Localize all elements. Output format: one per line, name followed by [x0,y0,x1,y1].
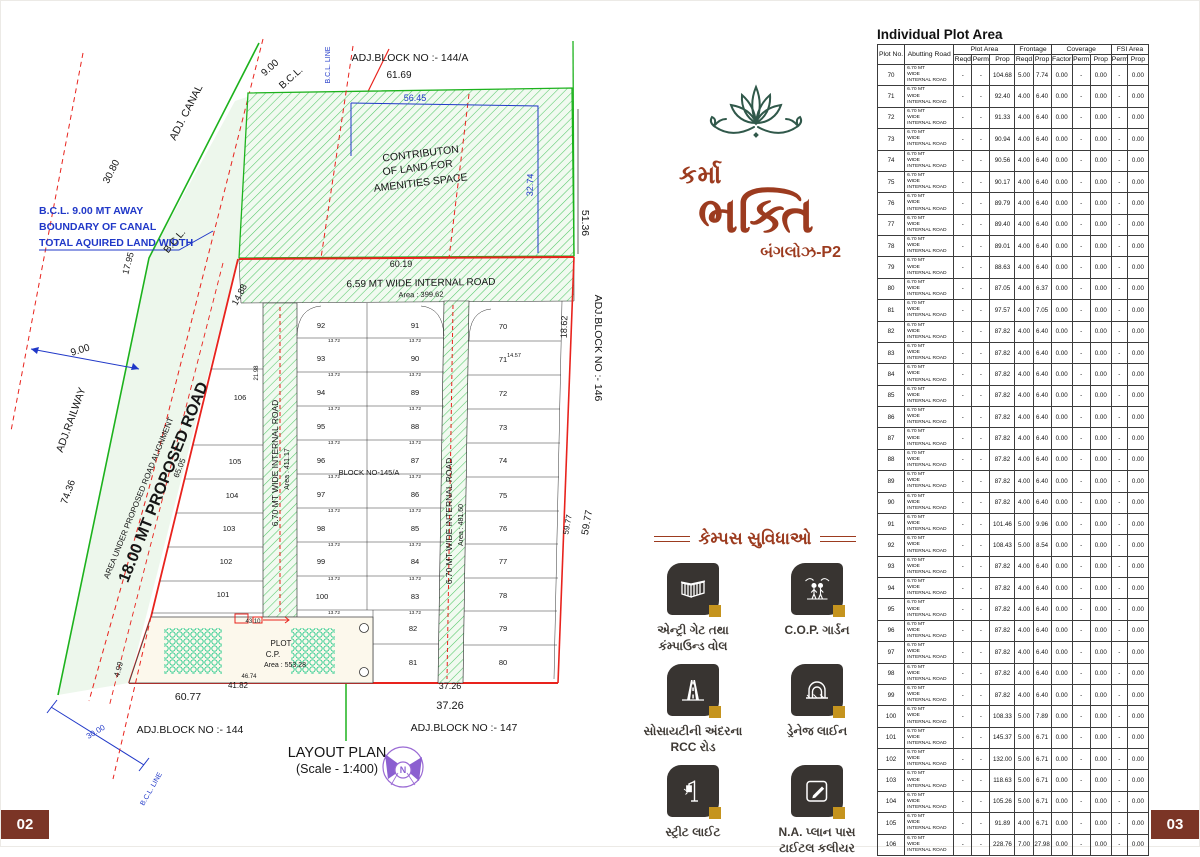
plan-dim-label: 13.72 [409,372,421,378]
plan-label: Area : 411.17 [284,448,291,490]
table-row: 716.70 MTWIDEINTERNAL ROAD--92.404.006.4… [878,86,1149,107]
table-cell: 76 [878,193,905,214]
table-cell: 0.00 [1051,791,1072,812]
table-cell: - [972,364,990,385]
plan-label: 6.70 MT WIDE INTERNAL ROAD [444,458,454,585]
table-cell: 0.00 [1051,684,1072,705]
amenity-item: સ્ટ્રીટ લાઈટ [637,765,749,856]
rcc-road-icon [667,664,719,716]
table-cell: - [972,171,990,192]
table-cell: 0.00 [1127,300,1148,321]
table-cell: 108.33 [990,706,1015,727]
table-cell: - [972,129,990,150]
amenity-label: સોસાયટીની અંદરના RCC રોડ [637,724,749,755]
table-cell: - [954,513,972,534]
table-title: Individual Plot Area [877,27,1149,42]
table-cell: - [1111,492,1127,513]
table-row: 966.70 MTWIDEINTERNAL ROAD--87.824.006.4… [878,620,1149,641]
plan-dim-label: 13.72 [328,338,340,344]
table-cell: - [954,407,972,428]
plan-dim-label: 13.72 [328,440,340,446]
plan-label: 9.00 [259,57,281,78]
table-cell: - [972,428,990,449]
table-cell: 0.00 [1051,492,1072,513]
table-cell: 0.00 [1051,834,1072,855]
plan-label: 9.00 [69,342,91,358]
plot-number: 70 [499,322,507,331]
plot-number: 74 [499,456,507,465]
table-cell: - [1072,86,1090,107]
table-cell: - [1111,663,1127,684]
table-row: 956.70 MTWIDEINTERNAL ROAD--87.824.006.4… [878,599,1149,620]
amenity-label: ડ્રેનેજ લાઈન [761,724,873,740]
table-cell: - [954,770,972,791]
table-cell: - [1072,321,1090,342]
table-cell: 4.00 [1015,492,1033,513]
table-cell: 0.00 [1090,300,1111,321]
table-cell: 4.00 [1015,193,1033,214]
page-number-right: 03 [1151,810,1199,839]
abutting-road-cell: 6.70 MTWIDEINTERNAL ROAD [905,620,954,641]
amenities-section: કેમ્પસ સુવિધાઓ એન્ટ્રી ગેટ તથા કંમ્પાઉન્… [633,529,877,857]
table-cell: 0.00 [1090,107,1111,128]
table-cell: - [1111,834,1127,855]
plot-number: 95 [317,422,325,431]
table-cell: 93 [878,556,905,577]
table-cell: - [972,65,990,86]
table-cell: 132.00 [990,749,1015,770]
table-cell: 0.00 [1090,257,1111,278]
table-cell: 0.00 [1127,834,1148,855]
table-row: 756.70 MTWIDEINTERNAL ROAD--90.174.006.4… [878,171,1149,192]
table-cell: - [972,813,990,834]
plan-label: 51.36 [579,210,591,236]
table-cell: 6.40 [1033,321,1051,342]
table-cell: 0.00 [1051,107,1072,128]
table-cell: 87 [878,428,905,449]
table-cell: - [1072,150,1090,171]
logo-subtitle: બંગલોઝ-P2 [641,244,871,262]
column-subheader: Reqd [1015,55,1033,65]
table-cell: - [972,749,990,770]
table-cell: 0.00 [1090,171,1111,192]
table-cell: 96 [878,620,905,641]
table-cell: 0.00 [1090,385,1111,406]
table-cell: - [1072,193,1090,214]
table-cell: 104 [878,791,905,812]
table-cell: 87.82 [990,428,1015,449]
abutting-road-cell: 6.70 MTWIDEINTERNAL ROAD [905,364,954,385]
table-row: 996.70 MTWIDEINTERNAL ROAD--87.824.006.4… [878,684,1149,705]
table-cell: 87.82 [990,364,1015,385]
plan-label: 6.70 MT WIDE INTERNAL ROAD [270,400,280,527]
table-cell: - [972,214,990,235]
cop-garden-icon [791,563,843,615]
plot-number: 83 [411,592,419,601]
table-row: 986.70 MTWIDEINTERNAL ROAD--87.824.006.4… [878,663,1149,684]
table-cell: - [954,321,972,342]
table-cell: 0.00 [1127,257,1148,278]
table-cell: 4.00 [1015,129,1033,150]
amenities-grid: એન્ટ્રી ગેટ તથા કંમ્પાઉન્ડ વોલC.O.P. ગાર… [633,563,877,857]
table-cell: - [1111,150,1127,171]
garden-patch [164,628,222,674]
table-cell: - [1072,364,1090,385]
table-cell: - [1072,236,1090,257]
table-cell: - [954,813,972,834]
table-cell: - [954,684,972,705]
table-cell: - [972,513,990,534]
table-cell: 0.00 [1051,620,1072,641]
abutting-road-cell: 6.70 MTWIDEINTERNAL ROAD [905,449,954,470]
plan-label: 60.19 [390,259,413,269]
abutting-road-cell: 6.70 MTWIDEINTERNAL ROAD [905,385,954,406]
plan-dim-label: 13.72 [409,610,421,616]
table-cell: 81 [878,300,905,321]
table-row: 936.70 MTWIDEINTERNAL ROAD--87.824.006.4… [878,556,1149,577]
table-cell: 82 [878,321,905,342]
table-cell: 83 [878,342,905,363]
table-cell: 0.00 [1051,535,1072,556]
abutting-road-cell: 6.70 MTWIDEINTERNAL ROAD [905,342,954,363]
table-cell: 0.00 [1127,727,1148,748]
table-cell: 6.71 [1033,791,1051,812]
abutting-road-cell: 6.70 MTWIDEINTERNAL ROAD [905,65,954,86]
table-cell: - [954,556,972,577]
plan-label: 18.62 [559,315,570,338]
table-cell: 4.00 [1015,578,1033,599]
table-cell: 88 [878,449,905,470]
plan-dim-label: 13.72 [409,440,421,446]
table-cell: 6.71 [1033,727,1051,748]
table-cell: 0.00 [1090,706,1111,727]
amenity-label: N.A. પ્લાન પાસ ટાઈટલ કલીયર [761,825,873,856]
table-row: 1016.70 MTWIDEINTERNAL ROAD--145.375.006… [878,727,1149,748]
plot-number: 76 [499,524,507,533]
table-cell: 4.00 [1015,407,1033,428]
table-cell: - [954,364,972,385]
table-cell: 87.82 [990,492,1015,513]
plot-number: 80 [499,658,507,667]
table-cell: 0.00 [1127,471,1148,492]
table-cell: - [1111,620,1127,641]
table-cell: 6.40 [1033,193,1051,214]
table-cell: 105 [878,813,905,834]
table-cell: 0.00 [1127,428,1148,449]
table-cell: - [1111,599,1127,620]
table-cell: - [954,535,972,556]
table-cell: 0.00 [1051,513,1072,534]
table-cell: - [1111,513,1127,534]
table-cell: 0.00 [1051,86,1072,107]
plan-label: 56.45 [404,93,427,103]
table-cell: 0.00 [1090,599,1111,620]
plan-label: ADJ.BLOCK NO :- 144 [137,724,244,736]
table-cell: 0.00 [1127,86,1148,107]
table-cell: 6.37 [1033,278,1051,299]
table-cell: - [1111,257,1127,278]
table-cell: - [954,193,972,214]
table-cell: - [972,727,990,748]
table-cell: - [1111,300,1127,321]
table-cell: 8.54 [1033,535,1051,556]
table-cell: - [972,407,990,428]
table-cell: 87.82 [990,471,1015,492]
abutting-road-cell: 6.70 MTWIDEINTERNAL ROAD [905,257,954,278]
plan-label: 37.26 [439,681,462,691]
table-cell: 0.00 [1051,471,1072,492]
table-cell: 5.00 [1015,65,1033,86]
plot-number: 100 [316,592,329,601]
table-cell: - [1111,65,1127,86]
column-header: Frontage [1015,45,1051,55]
table-cell: 0.00 [1090,86,1111,107]
amenity-label: એન્ટ્રી ગેટ તથા કંમ્પાઉન્ડ વોલ [637,623,749,654]
table-cell: 0.00 [1051,663,1072,684]
plot-number: 87 [411,456,419,465]
table-cell: 0.00 [1051,749,1072,770]
table-row: 856.70 MTWIDEINTERNAL ROAD--87.824.006.4… [878,385,1149,406]
plan-label: Area : 481.60 [458,504,465,546]
plan-dim-label: 13.72 [328,610,340,616]
table-cell: 94 [878,578,905,599]
plot-number: 98 [317,524,325,533]
plan-label: ADJ. CANAL [167,83,205,143]
table-cell: 102 [878,749,905,770]
abutting-road-cell: 6.70 MTWIDEINTERNAL ROAD [905,535,954,556]
table-cell: - [954,428,972,449]
table-row: 886.70 MTWIDEINTERNAL ROAD--87.824.006.4… [878,449,1149,470]
table-cell: - [1111,706,1127,727]
plot-number: 78 [499,591,507,600]
table-cell: - [972,834,990,855]
table-cell: - [1111,321,1127,342]
abutting-road-cell: 6.70 MTWIDEINTERNAL ROAD [905,236,954,257]
table-row: 876.70 MTWIDEINTERNAL ROAD--87.824.006.4… [878,428,1149,449]
table-cell: - [972,684,990,705]
table-cell: 5.00 [1015,535,1033,556]
table-cell: - [1072,385,1090,406]
table-cell: - [1111,642,1127,663]
table-cell: 87.82 [990,620,1015,641]
na-plan-icon [791,765,843,817]
table-cell: 105.26 [990,791,1015,812]
column-header: FSI Area [1111,45,1148,55]
gold-corner-accent [709,807,721,819]
table-cell: 0.00 [1051,342,1072,363]
table-cell: 4.00 [1015,620,1033,641]
plot-number: 99 [317,557,325,566]
table-cell: - [1111,556,1127,577]
plot-number: 93 [317,354,325,363]
table-cell: 70 [878,65,905,86]
table-cell: - [972,642,990,663]
table-cell: - [1111,385,1127,406]
table-cell: - [1072,599,1090,620]
table-cell: - [1072,342,1090,363]
table-cell: - [1111,791,1127,812]
plan-label: ADJ.BLOCK NO :- 147 [411,722,518,734]
table-cell: - [1111,578,1127,599]
table-cell: - [954,236,972,257]
table-cell: 0.00 [1090,321,1111,342]
table-body: 706.70 MTWIDEINTERNAL ROAD--104.685.007.… [878,65,1149,856]
table-cell: 87.05 [990,278,1015,299]
gold-corner-accent [709,706,721,718]
table-cell: 6.40 [1033,257,1051,278]
table-cell: - [954,663,972,684]
plot-number: 85 [411,524,419,533]
table-row: 766.70 MTWIDEINTERNAL ROAD--89.794.006.4… [878,193,1149,214]
table-cell: 88.63 [990,257,1015,278]
table-cell: 87.82 [990,342,1015,363]
table-cell: 90.94 [990,129,1015,150]
table-cell: 5.00 [1015,749,1033,770]
plot-number: 105 [229,457,242,466]
table-cell: - [954,471,972,492]
plan-label: 60.77 [175,691,201,703]
column-subheader: Reqd [954,55,972,65]
abutting-road-cell: 6.70 MTWIDEINTERNAL ROAD [905,727,954,748]
table-row: 976.70 MTWIDEINTERNAL ROAD--87.824.006.4… [878,642,1149,663]
plot-number: 106 [234,393,247,402]
plot-number: 73 [499,423,507,432]
table-cell: - [972,706,990,727]
table-cell: - [1111,535,1127,556]
table-cell: - [1072,578,1090,599]
table-cell: - [954,150,972,171]
table-cell: - [1072,449,1090,470]
drainage-icon [791,664,843,716]
column-subheader: Factor [1051,55,1072,65]
plot-number: 91 [411,321,419,330]
table-row: 926.70 MTWIDEINTERNAL ROAD--108.435.008.… [878,535,1149,556]
table-cell: - [954,129,972,150]
table-cell: - [972,535,990,556]
table-cell: 0.00 [1051,150,1072,171]
table-cell: 6.40 [1033,407,1051,428]
table-cell: 99 [878,684,905,705]
table-cell: 0.00 [1127,385,1148,406]
table-cell: 0.00 [1090,364,1111,385]
table-cell: 0.00 [1090,578,1111,599]
table-cell: 6.40 [1033,428,1051,449]
table-cell: - [1111,428,1127,449]
amenity-item: N.A. પ્લાન પાસ ટાઈટલ કલીયર [761,765,873,856]
table-cell: 6.40 [1033,171,1051,192]
table-cell: - [1111,236,1127,257]
plan-caption: LAYOUT PLAN (Scale - 1:400) [271,745,403,776]
plan-dim-label: 13.72 [409,508,421,514]
table-cell: 0.00 [1127,65,1148,86]
plot-number: 90 [411,354,419,363]
table-cell: 4.00 [1015,663,1033,684]
plan-dim-label: 13.72 [409,542,421,548]
plan-label: BOUNDARY OF CANAL [39,221,157,233]
table-row: 816.70 MTWIDEINTERNAL ROAD--97.574.007.0… [878,300,1149,321]
table-cell: - [1111,770,1127,791]
table-cell: - [972,342,990,363]
table-cell: 0.00 [1090,129,1111,150]
table-cell: 4.00 [1015,107,1033,128]
plan-dim-label: 13.72 [328,508,340,514]
table-cell: 118.63 [990,770,1015,791]
column-subheader: Prop [990,55,1015,65]
table-cell: 4.00 [1015,171,1033,192]
amenities-heading-row: કેમ્પસ સુવિધાઓ [633,529,877,549]
table-cell: - [1072,706,1090,727]
plan-label: 61.69 [386,70,411,81]
table-cell: - [1111,86,1127,107]
table-cell: 78 [878,236,905,257]
table-cell: 0.00 [1090,513,1111,534]
table-cell: 0.00 [1051,193,1072,214]
table-cell: - [972,150,990,171]
abutting-road-cell: 6.70 MTWIDEINTERNAL ROAD [905,492,954,513]
table-row: 916.70 MTWIDEINTERNAL ROAD--101.465.009.… [878,513,1149,534]
page-number-left: 02 [1,810,49,839]
gold-corner-accent [833,807,845,819]
abutting-road-cell: 6.70 MTWIDEINTERNAL ROAD [905,214,954,235]
table-cell: 0.00 [1127,663,1148,684]
table-cell: 0.00 [1127,535,1148,556]
plan-label: C.P. [266,650,281,659]
table-cell: 90.56 [990,150,1015,171]
table-cell: 4.00 [1015,385,1033,406]
table-cell: - [954,107,972,128]
table-cell: - [1111,214,1127,235]
table-cell: 0.00 [1090,620,1111,641]
amenity-label: સ્ટ્રીટ લાઈટ [637,825,749,841]
table-cell: - [1111,171,1127,192]
table-cell: - [1072,214,1090,235]
plan-label: 59.77 [580,509,595,536]
table-cell: 0.00 [1127,684,1148,705]
table-cell: - [954,599,972,620]
table-cell: 0.00 [1090,65,1111,86]
table-cell: - [972,471,990,492]
plan-label: 32.74 [525,173,536,196]
table-cell: 6.40 [1033,492,1051,513]
table-cell: 103 [878,770,905,791]
table-cell: 91.33 [990,107,1015,128]
table-cell: 0.00 [1051,813,1072,834]
table-cell: 0.00 [1051,129,1072,150]
plan-label: ADJ.RAILWAY [54,386,89,454]
abutting-road-cell: 6.70 MTWIDEINTERNAL ROAD [905,300,954,321]
table-cell: 27.98 [1033,834,1051,855]
table-cell: 79 [878,257,905,278]
table-cell: 0.00 [1127,364,1148,385]
table-cell: 87.82 [990,684,1015,705]
gold-corner-accent [709,605,721,617]
abutting-road-cell: 6.70 MTWIDEINTERNAL ROAD [905,556,954,577]
plan-dim-label: 13.72 [409,338,421,344]
table-cell: 0.00 [1127,107,1148,128]
column-subheader: Perm [1072,55,1090,65]
table-cell: - [954,385,972,406]
table-cell: 6.40 [1033,129,1051,150]
table-cell: 80 [878,278,905,299]
table-cell: - [972,770,990,791]
table-cell: 0.00 [1127,513,1148,534]
table-cell: - [1072,556,1090,577]
table-cell: 6.40 [1033,684,1051,705]
table-cell: 6.40 [1033,642,1051,663]
gold-corner-accent [833,605,845,617]
table-cell: - [954,620,972,641]
plot-number: 71 [499,355,507,364]
